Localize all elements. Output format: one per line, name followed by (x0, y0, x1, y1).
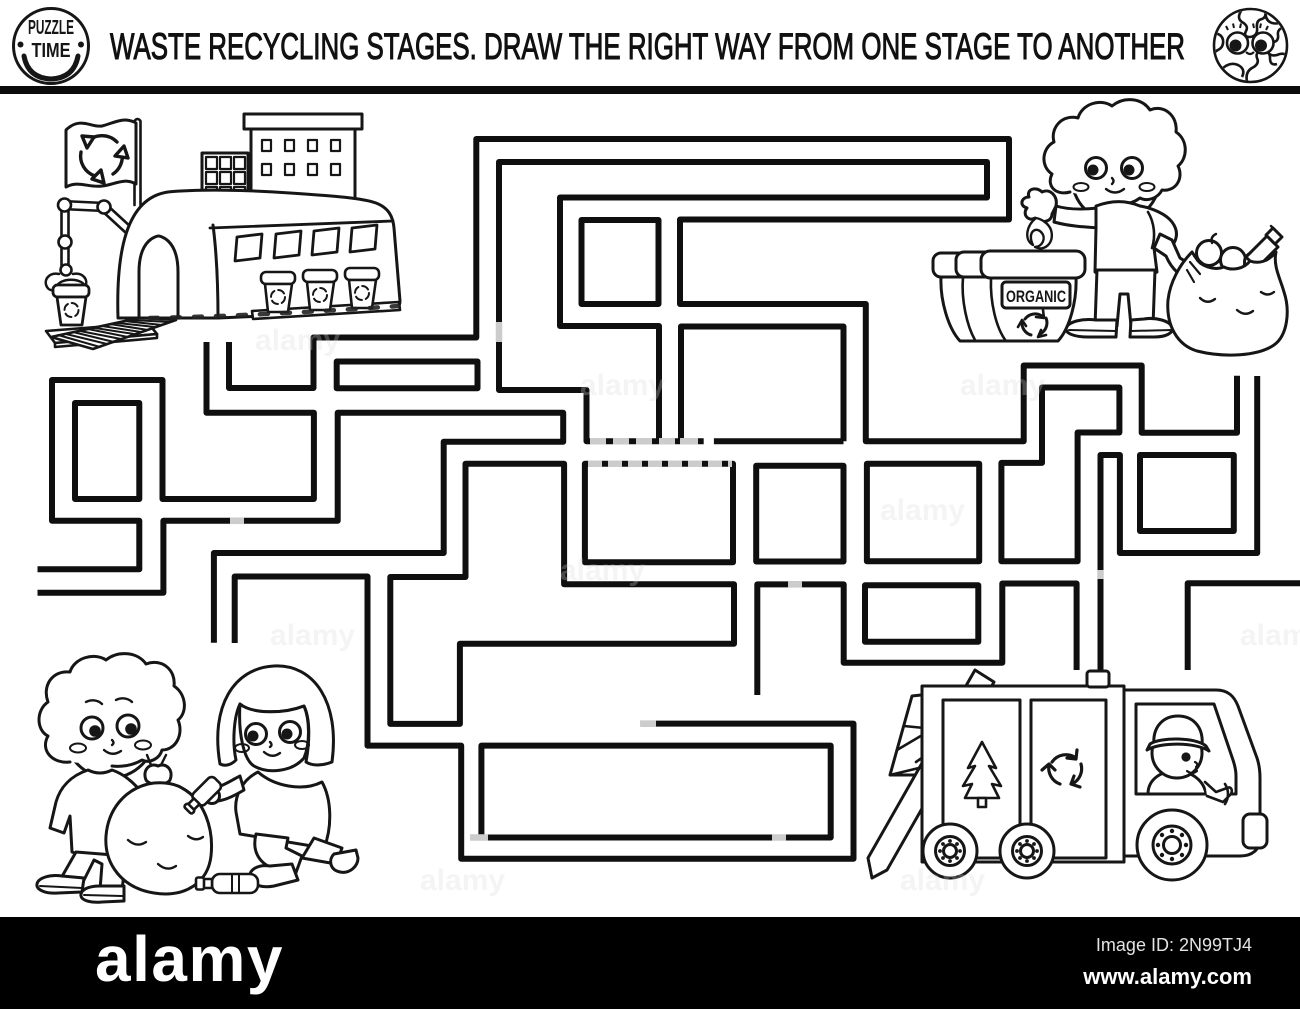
svg-text:WASTE RECYCLING STAGES. DRAW T: WASTE RECYCLING STAGES. DRAW THE RIGHT W… (110, 25, 1185, 67)
svg-text:TIME: TIME (32, 40, 71, 62)
svg-text:alamy: alamy (420, 864, 505, 897)
svg-text:alamy: alamy (95, 923, 284, 995)
svg-text:alamy: alamy (1240, 619, 1300, 652)
svg-text:alamy: alamy (270, 619, 355, 652)
svg-text:alamy: alamy (880, 494, 965, 527)
svg-text:alamy: alamy (580, 369, 665, 402)
svg-text:alamy: alamy (255, 324, 340, 357)
svg-text:alamy: alamy (560, 554, 645, 587)
svg-text:www.alamy.com: www.alamy.com (1082, 964, 1252, 989)
svg-text:ORGANIC: ORGANIC (1006, 287, 1066, 306)
svg-text:PUZZLE: PUZZLE (28, 17, 74, 39)
svg-text:Image ID: 2N99TJ4: Image ID: 2N99TJ4 (1096, 935, 1252, 955)
svg-text:alamy: alamy (900, 864, 985, 897)
svg-text:alamy: alamy (960, 369, 1045, 402)
